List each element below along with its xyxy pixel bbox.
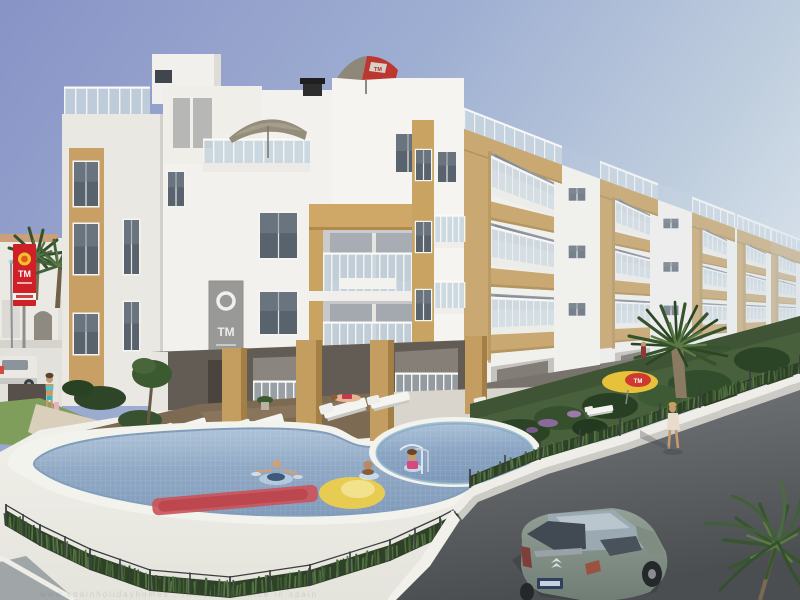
- svg-text:TM: TM: [18, 269, 31, 279]
- svg-text:TM: TM: [634, 379, 643, 385]
- svg-text:TM: TM: [217, 325, 234, 339]
- svg-text:www.spainholidayhomes . the cl: www.spainholidayhomes . the clear choice…: [39, 590, 318, 599]
- svg-text:TM: TM: [374, 67, 382, 73]
